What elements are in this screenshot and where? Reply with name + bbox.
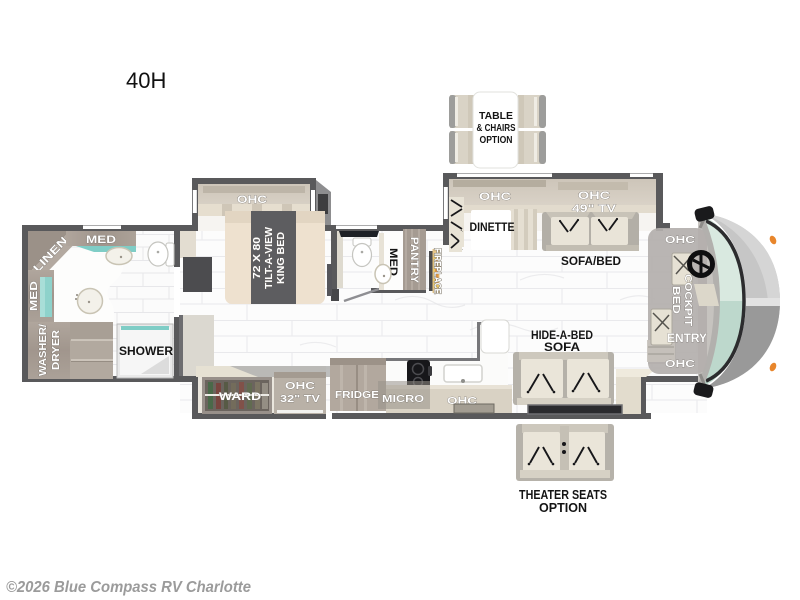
svg-text:SHOWER: SHOWER	[119, 346, 174, 358]
svg-text:OHC: OHC	[578, 190, 610, 202]
svg-text:OHC: OHC	[479, 191, 511, 203]
svg-text:KING BED: KING BED	[275, 232, 287, 284]
svg-text:FRIDGE: FRIDGE	[335, 389, 379, 401]
svg-text:MED: MED	[86, 234, 116, 246]
svg-text:©2026 Blue Compass RV Charlott: ©2026 Blue Compass RV Charlotte	[6, 579, 251, 596]
svg-text:ENTRY: ENTRY	[667, 333, 707, 345]
svg-text:TILT-A-VIEW: TILT-A-VIEW	[263, 227, 275, 289]
svg-text:DINETTE: DINETTE	[470, 222, 515, 234]
svg-text:OHC: OHC	[285, 380, 316, 392]
svg-text:PANTRY: PANTRY	[408, 237, 420, 284]
svg-text:MICRO: MICRO	[382, 393, 424, 405]
svg-text:FIREPLACE: FIREPLACE	[432, 248, 443, 294]
svg-text:TABLE: TABLE	[479, 110, 513, 122]
svg-text:HIDE-A-BED: HIDE-A-BED	[531, 330, 593, 342]
svg-text:WASHER/: WASHER/	[37, 324, 49, 376]
svg-text:OPTION: OPTION	[539, 501, 587, 515]
svg-text:72 X 80: 72 X 80	[251, 237, 263, 279]
svg-text:SOFA/BED: SOFA/BED	[561, 254, 621, 268]
svg-text:40H: 40H	[126, 68, 166, 93]
svg-text:WARD: WARD	[219, 391, 261, 403]
svg-text:THEATER SEATS: THEATER SEATS	[519, 488, 607, 502]
svg-text:32" TV: 32" TV	[280, 393, 320, 405]
svg-text:& CHAIRS: & CHAIRS	[477, 122, 516, 134]
svg-text:OPTION: OPTION	[480, 134, 513, 146]
svg-text:DRYER: DRYER	[50, 330, 62, 370]
svg-text:OHC: OHC	[665, 234, 696, 246]
svg-text:OHC: OHC	[237, 194, 267, 206]
svg-text:OHC: OHC	[665, 358, 696, 370]
svg-text:MED: MED	[28, 280, 40, 311]
svg-text:COCKPIT: COCKPIT	[682, 274, 694, 327]
